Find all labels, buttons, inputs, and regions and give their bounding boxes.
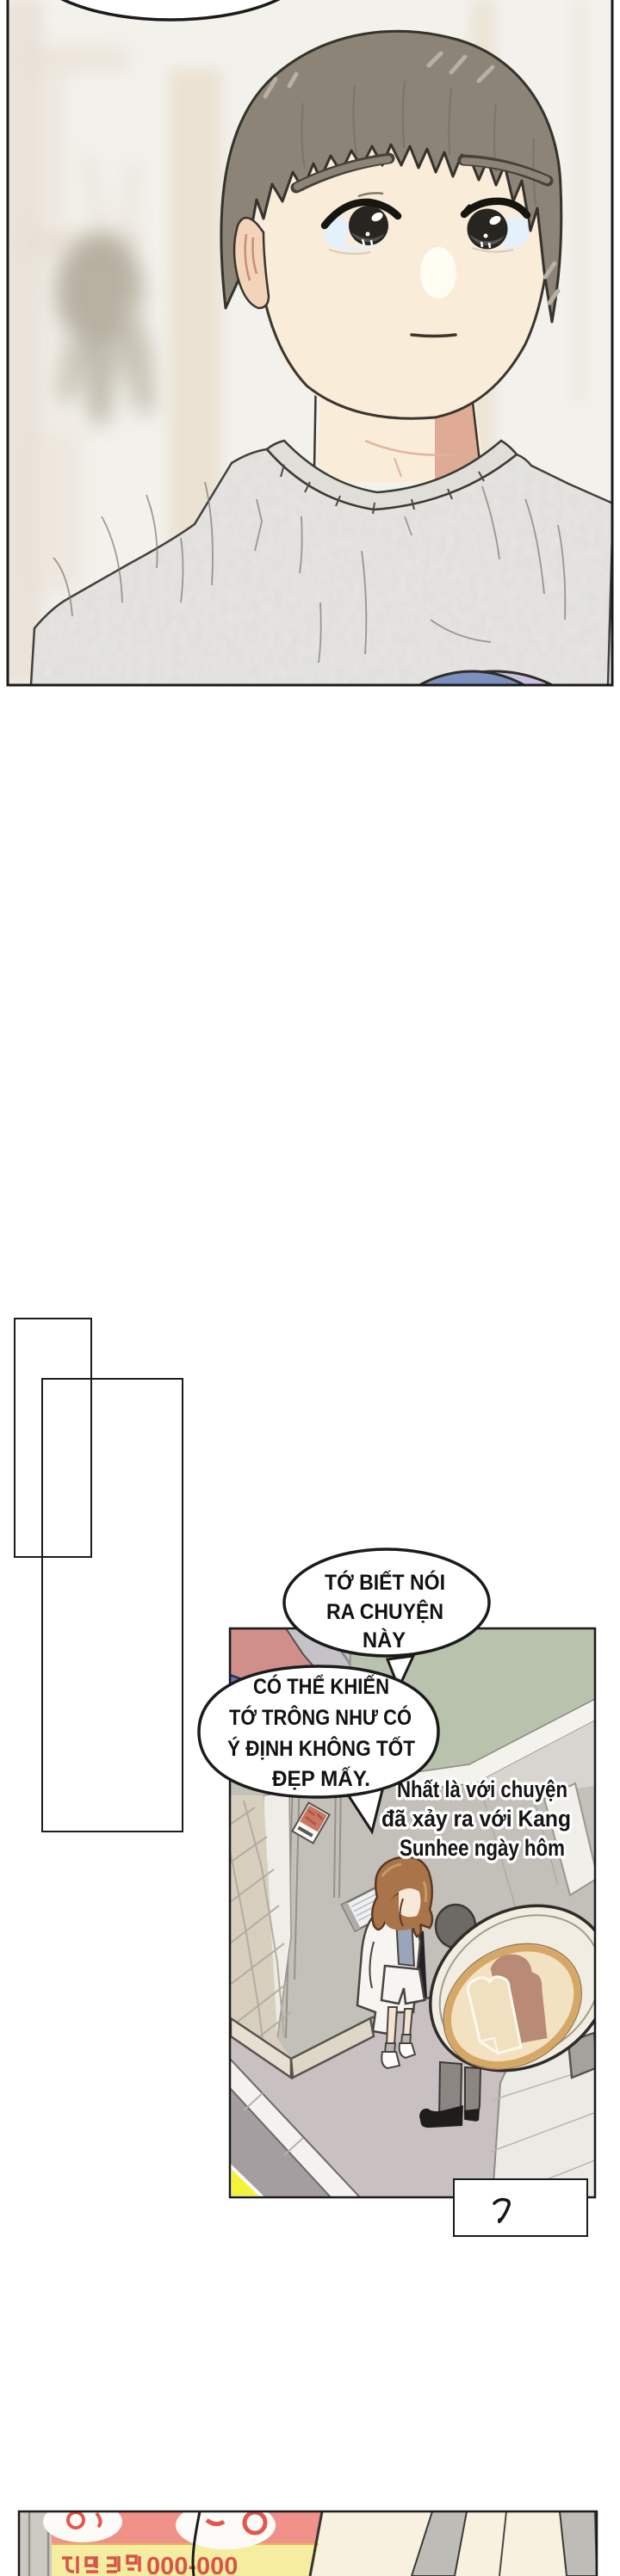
svg-text:Ý ĐỊNH KHÔNG TỐT: Ý ĐỊNH KHÔNG TỐT xyxy=(227,1735,415,1761)
svg-text:Sunhee ngày hôm: Sunhee ngày hôm xyxy=(400,1835,565,1861)
svg-text:TỚ BIẾT NÓI: TỚ BIẾT NÓI xyxy=(325,1569,445,1595)
svg-text:TỚ TRÔNG NHƯ CÓ: TỚ TRÔNG NHƯ CÓ xyxy=(229,1704,412,1730)
svg-text:RA CHUYỆN: RA CHUYỆN xyxy=(326,1598,443,1624)
svg-text:đã xảy ra với Kang: đã xảy ra với Kang xyxy=(381,1806,571,1832)
svg-text:ĐẸP MẤY.: ĐẸP MẤY. xyxy=(272,1766,370,1791)
svg-text:Nhất là với chuyện: Nhất là với chuyện xyxy=(397,1776,567,1802)
svg-text:CÓ THỂ KHIẾN: CÓ THỂ KHIẾN xyxy=(253,1673,389,1699)
svg-text:NÀY: NÀY xyxy=(363,1628,406,1652)
